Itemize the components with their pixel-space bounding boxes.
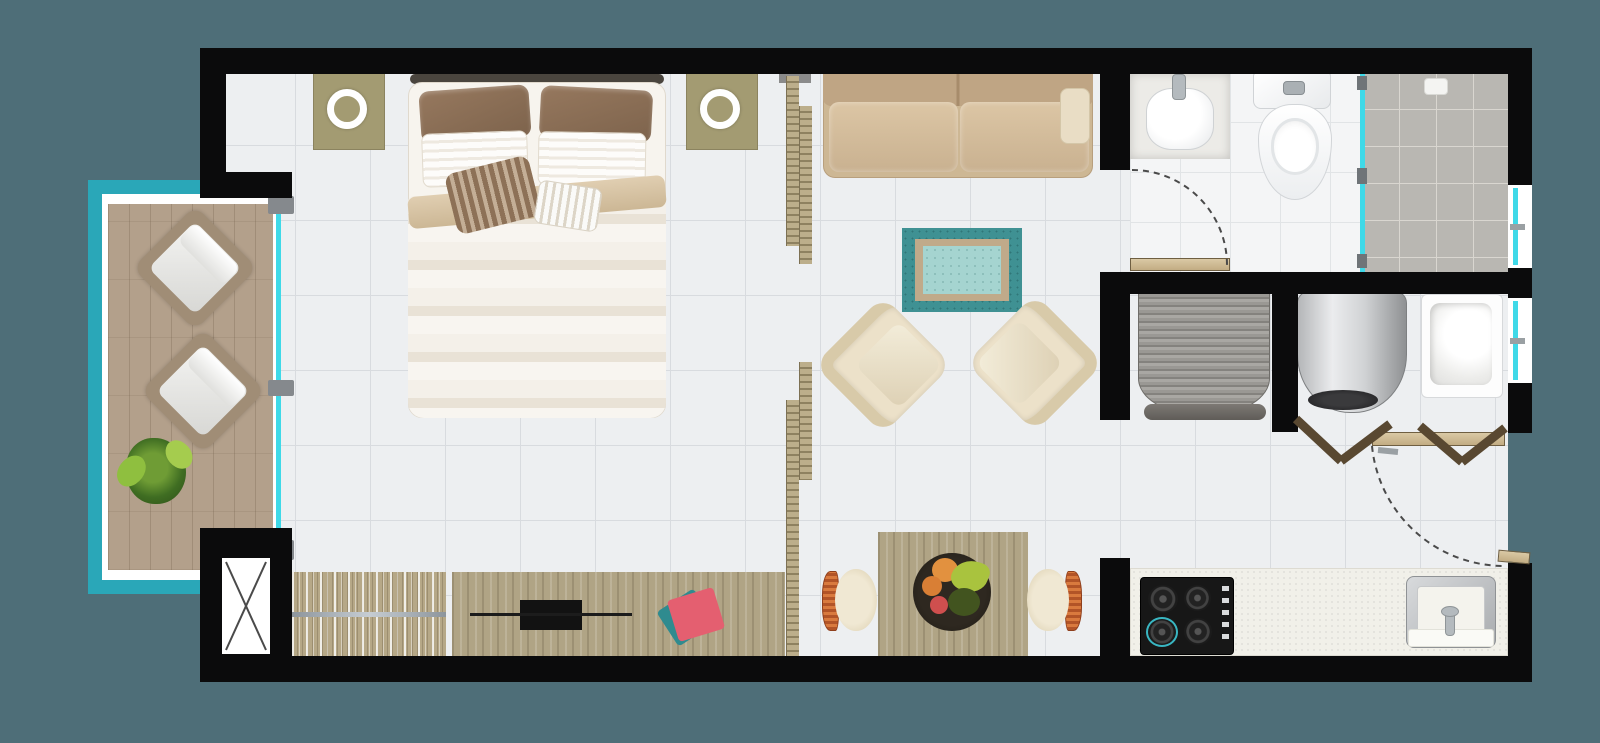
balcony-door-frame-top <box>268 196 294 214</box>
toilet-flush-button <box>1283 81 1305 95</box>
window-shower <box>1508 185 1532 268</box>
wall-balcony-jog <box>200 172 292 198</box>
balcony-rail-bottom <box>88 580 206 594</box>
floor-plan <box>0 0 1600 743</box>
partition-slat-d <box>786 400 799 656</box>
rug-center <box>923 246 1001 294</box>
dining-chair-left <box>822 566 878 634</box>
cooktop-burner-1 <box>1148 585 1178 613</box>
wall-right-a <box>1508 48 1532 185</box>
balcony-door-frame-mid <box>268 380 294 396</box>
entry-door-leaf <box>1372 432 1505 446</box>
laundry-curved-closet <box>1138 293 1270 415</box>
water-heater-vent <box>1308 390 1378 410</box>
wall-right-d <box>1508 563 1532 682</box>
partition-slat-b <box>799 106 812 264</box>
laundry-tub <box>1421 294 1503 398</box>
bathroom-door-leaf <box>1130 258 1230 271</box>
fruit-kiwi <box>948 588 980 616</box>
sofa-arm-pillow <box>1060 88 1090 144</box>
floor-shower <box>1362 72 1508 272</box>
fruit-red <box>930 596 948 614</box>
lamp-ring-right <box>700 89 740 129</box>
shaft-duct-box <box>222 558 270 654</box>
wall-bottom <box>200 656 1532 682</box>
lamp-ring-left <box>327 89 367 129</box>
wall-kitchen-stub <box>1100 558 1130 657</box>
dining-chair-right <box>1026 566 1082 634</box>
balcony-plant <box>126 438 186 504</box>
laundry-closet-lip <box>1144 404 1266 420</box>
fruit-orange-2 <box>922 576 942 596</box>
bath-sink-faucet <box>1172 74 1186 100</box>
soundbar <box>470 613 632 616</box>
shower-glass-hinge-mid <box>1357 168 1367 184</box>
cooktop-burner-4 <box>1184 618 1212 645</box>
wall-laundry-mid <box>1272 294 1298 432</box>
cooktop-burner-3 <box>1146 617 1178 647</box>
shower-glass-hinge-bottom <box>1357 254 1367 268</box>
cooktop-burner-2 <box>1184 585 1211 611</box>
shower-drain <box>1424 78 1448 95</box>
balcony-rail-top <box>88 180 206 194</box>
wardrobe-rod <box>292 612 446 617</box>
wall-bath-divider-mid <box>1100 272 1130 420</box>
wall-top <box>200 48 1532 74</box>
window-laundry <box>1508 298 1532 383</box>
wall-right-c <box>1508 383 1532 433</box>
sofa-seat-left <box>829 102 958 172</box>
wall-bath-divider-top <box>1100 72 1130 170</box>
shower-glass-hinge-top <box>1357 76 1367 90</box>
cooktop-knobs <box>1222 586 1229 642</box>
wall-hall-horizontal <box>1100 272 1532 294</box>
partition-slat-a <box>786 76 799 246</box>
bed-duvet <box>408 196 666 418</box>
partition-slat-c <box>799 362 812 480</box>
balcony-rail-left <box>88 180 102 594</box>
kitchen-faucet-head <box>1441 606 1459 617</box>
